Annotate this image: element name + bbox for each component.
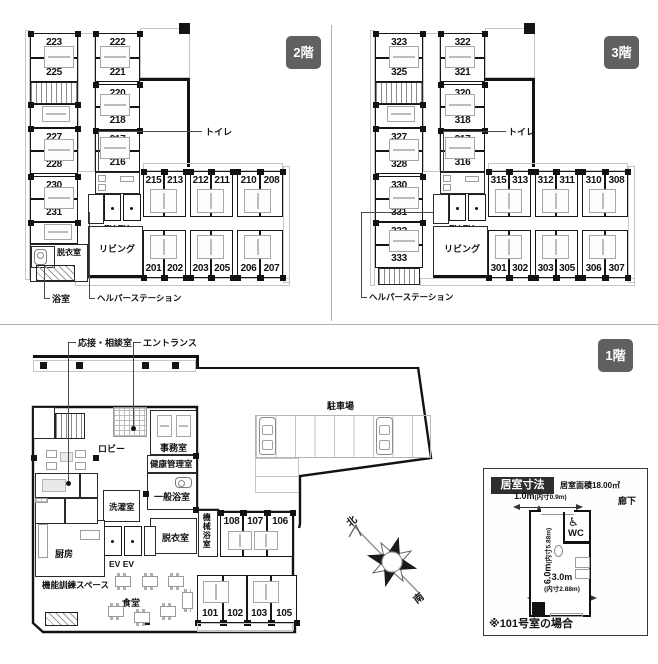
f1-grid: [35, 498, 48, 503]
bathtub-icon-1f: [175, 477, 192, 488]
compass-rose: 北 南: [344, 513, 427, 606]
label-toilet-2f: トイレ: [205, 127, 232, 137]
leader-toilet-2f: [98, 131, 99, 172]
stairs-entrance-1f: [55, 413, 85, 439]
room-dimension-panel: 居室寸法 居室面積18.00㎡ 1.0m(内寸0.9m) 廊下 ♿ WC 6.0…: [483, 468, 648, 636]
stairs-2f: [30, 82, 78, 104]
leader-reception: [68, 342, 76, 343]
leader-helper-3f: [361, 212, 362, 298]
elevator-2f: [123, 194, 141, 221]
site-wall-1f: [199, 367, 418, 369]
stairs-lower-2f: [36, 265, 75, 281]
wc-wall: [563, 512, 565, 542]
f1-furn: [157, 415, 172, 437]
f1-thin: [80, 530, 100, 540]
f1-sq: [76, 362, 83, 369]
f1-tbl: [168, 576, 184, 587]
toilet-stall-3f: [443, 184, 451, 191]
label-ev-1f: EV EV: [109, 560, 134, 570]
outer-wall-2f: [140, 78, 190, 167]
label-dining: 食堂: [122, 598, 140, 608]
floor-badge-3f: 3階: [604, 36, 639, 69]
sofa-icon: [75, 450, 86, 458]
f3-furn: [445, 137, 475, 159]
label-general-bath: 一般浴室: [154, 492, 190, 502]
dimension-horizontal: 3.0m(内寸2.88m): [544, 572, 580, 594]
meeting-table: [42, 479, 66, 492]
floor-badge-2f: 2階: [286, 36, 321, 69]
f1-sq: [172, 362, 179, 369]
label-undressing-1f: 脱衣室: [162, 533, 189, 543]
label-training-space: 機能訓練スペース: [42, 581, 109, 591]
f2-furn: [150, 189, 177, 213]
f3-furn: [389, 187, 419, 209]
f2-furn: [42, 106, 70, 122]
dimension-arrow-top: [520, 507, 576, 508]
storage-1f: [33, 407, 55, 439]
f2-furn: [150, 235, 177, 259]
sofa-icon: [46, 462, 57, 470]
stairs-lower-1f: [45, 612, 78, 626]
leader-reception-dot: [66, 481, 71, 486]
sofa-icon: [46, 450, 57, 458]
f3-furn: [495, 189, 522, 213]
wheelchair-icon: ♿: [568, 516, 579, 528]
courtyard-2f: [140, 28, 190, 78]
leader-entrance: [133, 342, 134, 428]
elevator-3f: [449, 194, 466, 221]
toilet-stall-2f: [98, 184, 106, 191]
f3-furn: [542, 235, 569, 259]
f1-tbl: [142, 576, 158, 587]
wc-wall: [563, 541, 589, 544]
label-toilet-3f: トイレ: [508, 127, 535, 137]
f2-furn: [44, 187, 74, 209]
f2-furn: [100, 46, 130, 68]
corridor-2f: [78, 33, 95, 172]
floor-plan-canvas: 北 南 2階 3階 1階 居室寸法 居室面積18.00㎡ 1.0m(内寸0.9m…: [0, 0, 658, 664]
label-health-admin: 健康管理室: [150, 460, 193, 470]
elevator-1f: [124, 526, 142, 556]
canopy-wall-1f: [33, 355, 197, 358]
toilet-stall-3f: [443, 175, 451, 182]
f1-sq: [142, 362, 149, 369]
label-reception: 応接・相談室: [78, 338, 132, 348]
walkway-right-3f: [628, 166, 635, 283]
f1-tbl: [134, 612, 150, 623]
f1-sq: [143, 491, 149, 497]
f1-furn: [254, 531, 278, 550]
f3-furn: [445, 46, 475, 68]
f3-furn: [445, 94, 475, 116]
leader-bath-2f: [44, 266, 45, 299]
label-living-2f: リビング: [99, 244, 135, 254]
f1-hl: [255, 476, 299, 477]
f2-furn: [44, 224, 72, 240]
f1-sq: [40, 362, 47, 369]
f1-furn: [176, 415, 191, 437]
entrance-mat: [113, 407, 147, 437]
car-icon: [259, 417, 276, 455]
sample-room-outline: ♿ WC: [529, 510, 591, 617]
leader-bath-2f: [44, 298, 50, 299]
label-kitchen: 厨房: [55, 549, 73, 559]
helper-station-room-3f: [433, 194, 449, 224]
leader-helper-3f: [361, 212, 433, 213]
small-room-1f: [80, 473, 98, 498]
compass-south-label: 南: [411, 590, 427, 606]
corridor-label: 廊下: [618, 497, 636, 506]
compass-north-label: 北: [344, 513, 360, 529]
dimension-top: 1.0m(内寸0.9m): [514, 492, 567, 502]
courtyard-3f: [485, 28, 535, 78]
helper-station-room-2f: [88, 194, 104, 224]
f2-furn: [100, 137, 130, 159]
washbasin-3f: [465, 176, 479, 182]
label-bathroom-2f: 浴室: [52, 294, 70, 304]
leader-helper-3f: [361, 297, 367, 298]
window: [550, 613, 583, 617]
stairs-3f: [375, 82, 423, 104]
leader-entrance: [133, 342, 141, 343]
f2-furn: [197, 235, 224, 259]
parking-stalls: [255, 415, 431, 458]
door-opening: [541, 510, 574, 513]
leader-entrance-dot: [131, 426, 136, 431]
f1-furn: [203, 581, 229, 603]
elevator-1f: [104, 526, 122, 556]
label-office: 事務室: [160, 443, 187, 453]
pillar-block: [532, 602, 545, 616]
f1-sq: [31, 455, 37, 461]
stairs-lower-3f: [378, 268, 420, 285]
label-helper-station-2f: ヘルパーステーション: [97, 294, 181, 304]
small-room-1f: [65, 498, 98, 524]
closet-icon: [575, 557, 590, 568]
section-divider-vertical: [331, 25, 332, 321]
label-entrance: エントランス: [143, 338, 197, 348]
leader-toilet-3f: [443, 131, 506, 132]
detail-note: ※101号室の場合: [489, 619, 573, 630]
column-2f: [179, 23, 190, 34]
washbasin-icon: [554, 545, 563, 557]
f2-furn: [44, 139, 74, 161]
sofa-icon: [75, 462, 86, 470]
f3-furn: [495, 235, 522, 259]
car-icon: [376, 417, 393, 455]
f1-sq: [193, 507, 199, 513]
lobby-table: [60, 452, 73, 462]
outer-wall-3f: [485, 78, 535, 167]
label-laundry: 洗濯室: [109, 503, 135, 513]
leader-reception: [68, 342, 69, 483]
label-helper-station-3f: ヘルパーステーション: [369, 293, 453, 303]
f1-sq: [93, 455, 99, 461]
leader-toilet-3f: [443, 131, 444, 172]
f1-tbl: [115, 576, 131, 587]
section-divider-horizontal: [0, 324, 658, 325]
f2-furn: [100, 94, 130, 116]
f2-furn: [44, 46, 74, 68]
f1-tbl: [182, 592, 193, 609]
f3-furn: [542, 189, 569, 213]
elevator-2f: [104, 194, 121, 221]
toilet-stall-2f: [98, 175, 106, 182]
f3-furn: [387, 106, 415, 122]
f1-sq: [193, 453, 199, 459]
f2-furn: [244, 235, 271, 259]
column-3f: [524, 23, 535, 34]
f1-tbl: [108, 606, 124, 617]
label-living-3f: リビング: [444, 244, 480, 254]
f3-furn: [389, 46, 419, 68]
label-machine-bath: 機械浴室: [202, 513, 216, 555]
floor-badge-1f: 1階: [598, 339, 633, 372]
label-parking: 駐車場: [327, 401, 354, 411]
corridor-3f: [423, 33, 440, 172]
f3-furn: [389, 139, 419, 161]
walkway-right-2f: [283, 166, 290, 283]
room-area-text: 居室面積18.00㎡: [560, 482, 620, 490]
wc-label: WC: [568, 529, 584, 539]
washbasin-2f: [120, 176, 134, 182]
f1-furn: [253, 581, 279, 603]
f1-furn: [228, 531, 252, 550]
label-datsuiishitsu-2f: 脱衣室: [57, 248, 81, 257]
leader-toilet-2f: [98, 131, 202, 132]
f1-thin: [38, 524, 48, 558]
leader-helper-2f: [89, 212, 90, 299]
f3-furn: [589, 189, 616, 213]
bathtub-icon-2f: [34, 249, 47, 265]
f3-furn: [589, 235, 616, 259]
f2-furn: [197, 189, 224, 213]
walkway-bottom-1f: [197, 623, 293, 632]
f2-furn: [244, 189, 271, 213]
elevator-3f: [468, 194, 486, 221]
f1-tbl: [160, 606, 176, 617]
f3-furn: [389, 230, 419, 252]
leader-helper-2f: [89, 298, 95, 299]
label-lobby: ロビー: [98, 444, 125, 454]
service-room-1f: [144, 526, 156, 556]
